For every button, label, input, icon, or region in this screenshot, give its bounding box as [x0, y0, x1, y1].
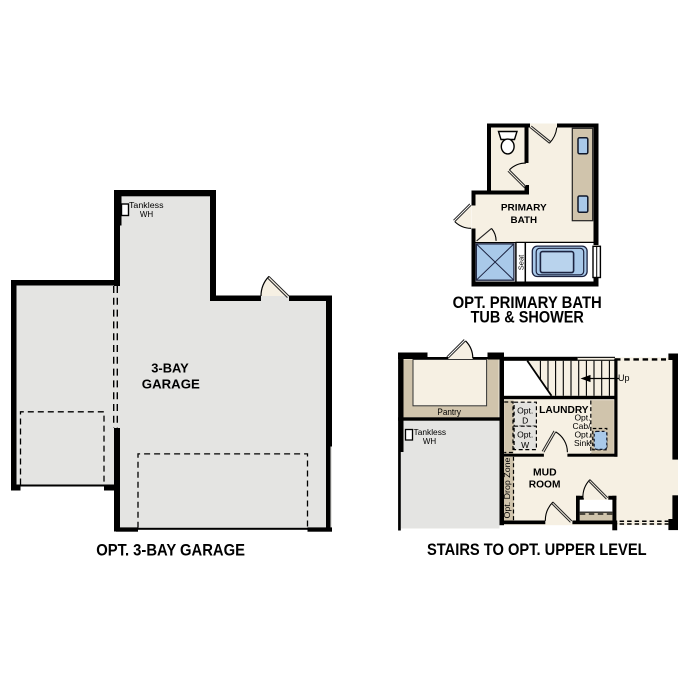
svg-text:TUB & SHOWER: TUB & SHOWER [471, 308, 584, 326]
svg-text:Seat: Seat [516, 254, 525, 270]
svg-text:Tankless: Tankless [414, 428, 447, 437]
svg-text:PRIMARY: PRIMARY [501, 203, 548, 213]
svg-text:Pantry: Pantry [437, 406, 461, 417]
svg-text:Up: Up [618, 373, 630, 383]
svg-text:Sink: Sink [574, 438, 591, 448]
svg-text:OPT. 3-BAY GARAGE: OPT. 3-BAY GARAGE [96, 542, 245, 560]
svg-text:D: D [522, 416, 528, 426]
svg-text:Opt. Drop Zone: Opt. Drop Zone [502, 457, 512, 518]
svg-text:W: W [521, 440, 529, 450]
svg-text:STAIRS TO OPT. UPPER LEVEL: STAIRS TO OPT. UPPER LEVEL [427, 541, 647, 559]
svg-text:GARAGE: GARAGE [142, 376, 200, 391]
svg-text:MUD: MUD [533, 468, 557, 479]
svg-text:3-BAY: 3-BAY [151, 360, 189, 375]
svg-text:BATH: BATH [511, 215, 538, 225]
svg-text:ROOM: ROOM [529, 479, 561, 490]
svg-text:Opt.: Opt. [517, 429, 533, 439]
svg-text:Opt.: Opt. [517, 405, 533, 415]
svg-text:Tankless: Tankless [129, 201, 164, 210]
svg-text:WH: WH [140, 210, 154, 219]
svg-text:WH: WH [423, 437, 437, 446]
